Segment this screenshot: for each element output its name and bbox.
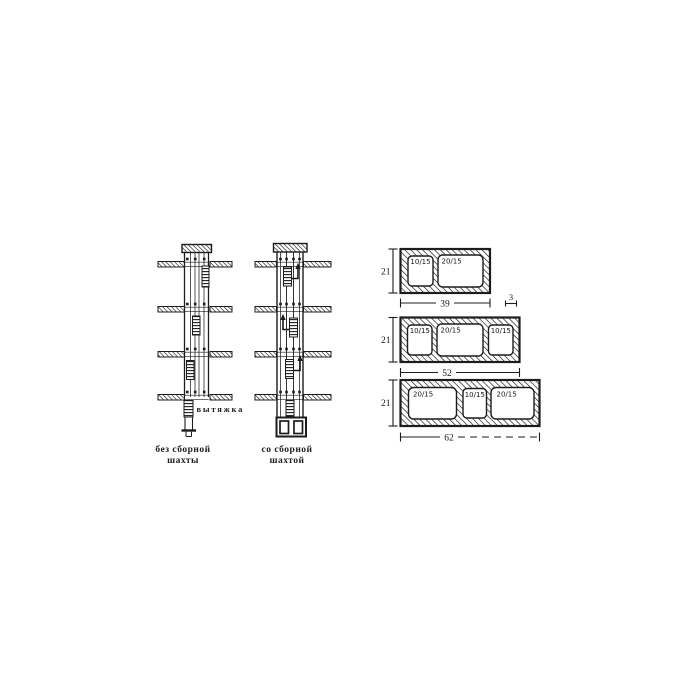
caption-with-line1: со сборной: [261, 444, 312, 455]
opening-label: 20/15: [442, 258, 462, 266]
floor-slab: [304, 307, 332, 313]
airflow-arrow: [292, 268, 299, 279]
floor-slab: [304, 352, 332, 358]
exhaust-label: вытяжка: [197, 404, 245, 414]
caption-without-line2: шахты: [167, 456, 199, 466]
collector-inlet-blocks: [284, 267, 298, 417]
opening-label: 20/15: [441, 327, 461, 335]
figure-canvas: вытяжка без сборной шахты: [0, 0, 700, 700]
opening-label: 10/15: [491, 327, 511, 335]
opening-label: 20/15: [497, 391, 517, 399]
floor-slab: [210, 395, 232, 401]
channel-grille: [202, 266, 209, 287]
exhaust-grille: [184, 401, 193, 418]
channel-grille: [286, 401, 294, 417]
shaft-roof-cap: [182, 245, 212, 253]
block-section-62: 20/15 10/15 20/15 21 62: [381, 380, 540, 444]
dim-height-label: 21: [381, 336, 391, 346]
dim-height-label: 21: [381, 268, 391, 278]
caption-with-line2: шахтой: [269, 455, 304, 466]
arrowhead-icon: [295, 263, 300, 269]
outlet-window: [280, 421, 289, 434]
dim-wall-label: 3: [509, 292, 513, 302]
block-section-39: 10/15 20/15 21 39 3: [381, 249, 517, 310]
channel-grille: [290, 318, 298, 337]
ventilation-diagram: вытяжка без сборной шахты: [0, 0, 700, 700]
basement-outlet-boxes: [277, 418, 307, 437]
arrowhead-icon: [280, 314, 285, 320]
channel-grille: [187, 361, 195, 380]
shaft-roof-cap: [274, 244, 308, 253]
dim-width-label: 62: [444, 434, 454, 444]
dim-width-62: [401, 433, 540, 442]
dim-height-label: 21: [381, 399, 391, 409]
floor-slab: [255, 262, 277, 268]
floor-slab: [158, 262, 185, 268]
outlet-window: [294, 421, 303, 434]
dim-width-52: [401, 368, 520, 377]
dim-width-label: 39: [440, 300, 450, 310]
floor-slab: [255, 395, 277, 401]
floor-slab: [304, 395, 332, 401]
diagram-shaft-with-collector: со сборной шахтой: [255, 244, 331, 467]
opening-label: 10/15: [410, 327, 430, 335]
channel-grilles-left: [184, 266, 209, 417]
floor-slab: [210, 262, 232, 268]
caption-without-line1: без сборной: [155, 444, 210, 455]
opening-label: 20/15: [413, 391, 433, 399]
arrowhead-icon: [297, 355, 302, 361]
opening-label: 10/15: [465, 391, 485, 399]
block-section-52: 10/15 20/15 10/15 21 52: [381, 318, 520, 380]
channel-grille: [193, 316, 201, 335]
floor-slab: [210, 307, 232, 313]
floor-slab: [158, 307, 185, 313]
exhaust-duct-outlet: [182, 417, 197, 437]
channel-grille: [286, 360, 294, 379]
dim-width-label: 52: [442, 369, 452, 379]
floor-slab: [255, 307, 277, 313]
floor-slab: [158, 352, 185, 358]
floor-slab: [304, 262, 332, 268]
floor-slab: [255, 352, 277, 358]
channel-grille: [284, 267, 292, 286]
diagram-shaft-without-collector: вытяжка без сборной шахты: [155, 245, 244, 467]
floor-slab: [210, 352, 232, 358]
floor-slab: [158, 395, 185, 401]
airflow-arrow: [294, 360, 301, 371]
opening-label: 10/15: [410, 258, 430, 266]
